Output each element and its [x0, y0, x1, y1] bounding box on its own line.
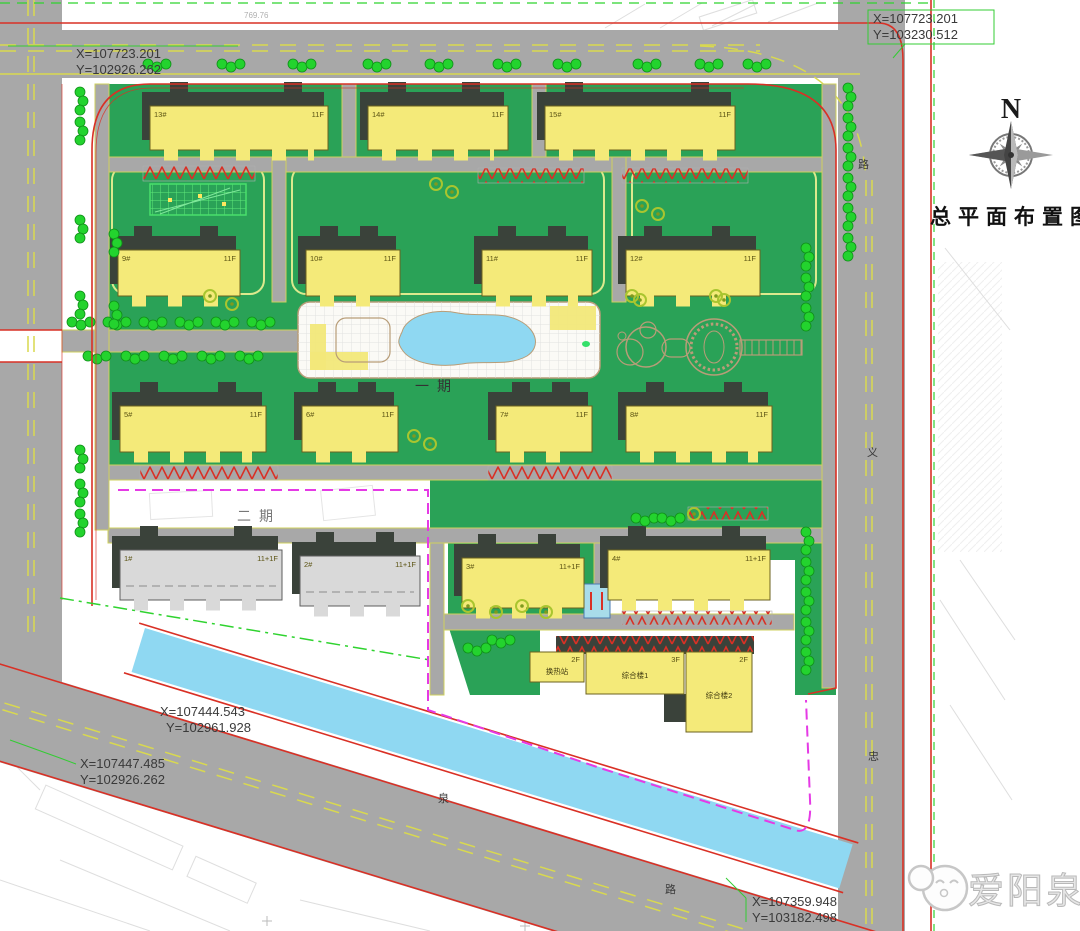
pergola-complex: [556, 636, 754, 652]
building-13-id: 13#: [154, 110, 167, 119]
coord-top-left-x: X=107723.201: [76, 46, 161, 61]
building-15-id: 15#: [549, 110, 562, 119]
building-13: 13# 11F: [142, 82, 328, 155]
building-3-id: 3#: [466, 562, 475, 571]
building-4: 4# 11+1F: [600, 526, 770, 605]
building-8-floors: 11F: [756, 410, 769, 419]
left-road-gap: [0, 330, 62, 362]
building-8-id: 8#: [630, 410, 639, 419]
building-3-floors: 11+1F: [559, 562, 580, 571]
building-1-floors: 11+1F: [257, 554, 278, 563]
swimming-pool: [399, 312, 536, 366]
building-5-floors: 11F: [250, 410, 263, 419]
site-plan-page: 13# 11F 14# 11F 15# 11F 9# 11F 10# 11F 1…: [0, 0, 1080, 931]
complex-1-name: 综合楼1: [622, 670, 649, 680]
building-15-floors: 11F: [719, 110, 732, 119]
building-8: 8# 11F: [618, 382, 772, 457]
coord-top-left-y: Y=102926.262: [76, 62, 161, 77]
building-2-id: 2#: [304, 560, 313, 569]
pergola-1: [478, 168, 584, 183]
building-12-floors: 11F: [744, 254, 757, 263]
playground: [150, 184, 246, 215]
building-15: 15# 11F: [537, 82, 735, 155]
street-label-right-bottom: 忠: [868, 750, 879, 763]
pergola-4: [488, 466, 612, 480]
building-10: 10# 11F: [298, 226, 400, 301]
building-14-id: 14#: [372, 110, 385, 119]
building-9: 9# 11F: [110, 226, 240, 301]
pergola-3: [140, 466, 278, 480]
building-6: 6# 11F: [294, 382, 398, 457]
heat-station-floors: 2F: [571, 655, 580, 664]
building-10-id: 10#: [310, 254, 323, 263]
coord-bottom-right-x: X=107359.948: [752, 894, 837, 909]
coordinate-label-mid-left: X=107444.543 Y=102961.928: [160, 704, 251, 735]
building-14-floors: 11F: [492, 110, 505, 119]
pergola-6: [622, 611, 772, 625]
watermark-text: 爱阳泉: [968, 870, 1080, 911]
street-label-right-top: 路: [858, 158, 869, 171]
building-5: 5# 11F: [112, 382, 266, 457]
building-12: 12# 11F: [618, 226, 760, 301]
building-14: 14# 11F: [360, 82, 508, 155]
plan-title: 总平面布置图: [930, 205, 1080, 229]
complex-building-2: 综合楼2 2F: [686, 652, 752, 732]
coord-mid-left-y: Y=102961.928: [166, 720, 251, 735]
building-6-id: 6#: [306, 410, 315, 419]
complex-2-name: 综合楼2: [706, 690, 733, 700]
complex-building-1: 综合楼1 3F: [586, 652, 684, 694]
building-2: 2# 11+1F: [292, 532, 420, 611]
building-1-id: 1#: [124, 554, 133, 563]
building-7-floors: 11F: [576, 410, 589, 419]
complex-2-floors: 2F: [739, 655, 748, 664]
building-5-id: 5#: [124, 410, 133, 419]
building-9-floors: 11F: [224, 254, 237, 263]
building-10-floors: 11F: [384, 254, 397, 263]
coord-top-right-x: X=107723.201: [873, 11, 958, 26]
street-label-bottom-east: 路: [665, 883, 676, 896]
building-13-floors: 11F: [312, 110, 325, 119]
pergola-2: [622, 168, 748, 183]
coord-top-right-y: Y=103230.512: [873, 27, 958, 42]
spot-elevation-label: 769.76: [244, 11, 269, 20]
coord-mid-left-x: X=107444.543: [160, 704, 245, 719]
north-label: N: [1001, 94, 1021, 125]
street-label-bottom-west: 泉: [438, 791, 449, 805]
building-11-floors: 11F: [576, 254, 589, 263]
building-4-floors: 11+1F: [745, 554, 766, 563]
building-6-floors: 11F: [382, 410, 395, 419]
building-11-id: 11#: [486, 254, 499, 263]
phase2-label: 二期: [237, 508, 281, 524]
entrance-ramp: [584, 584, 610, 618]
heat-station-name: 换热站: [546, 666, 569, 676]
building-7: 7# 11F: [488, 382, 592, 457]
coord-bottom-right-y: Y=103182.498: [752, 910, 837, 925]
watermark: 爱阳泉: [909, 866, 1080, 911]
building-1: 1# 11+1F: [112, 526, 282, 605]
phase1-label: 一期: [415, 378, 459, 394]
street-label-right-middle: 义: [867, 446, 878, 459]
building-9-id: 9#: [122, 254, 131, 263]
pergola-playground: [143, 166, 255, 181]
building-11: 11# 11F: [474, 226, 592, 301]
building-2-floors: 11+1F: [395, 560, 416, 569]
site-plan-drawing: 13# 11F 14# 11F 15# 11F 9# 11F 10# 11F 1…: [0, 0, 1080, 931]
building-4-id: 4#: [612, 554, 621, 563]
building-7-id: 7#: [500, 410, 509, 419]
coord-bottom-left-y: Y=102926.262: [80, 772, 165, 787]
complex-1-floors: 3F: [671, 655, 680, 664]
coord-bottom-left-x: X=107447.485: [80, 756, 165, 771]
heat-station: 换热站 2F: [530, 652, 584, 682]
building-12-id: 12#: [630, 254, 643, 263]
